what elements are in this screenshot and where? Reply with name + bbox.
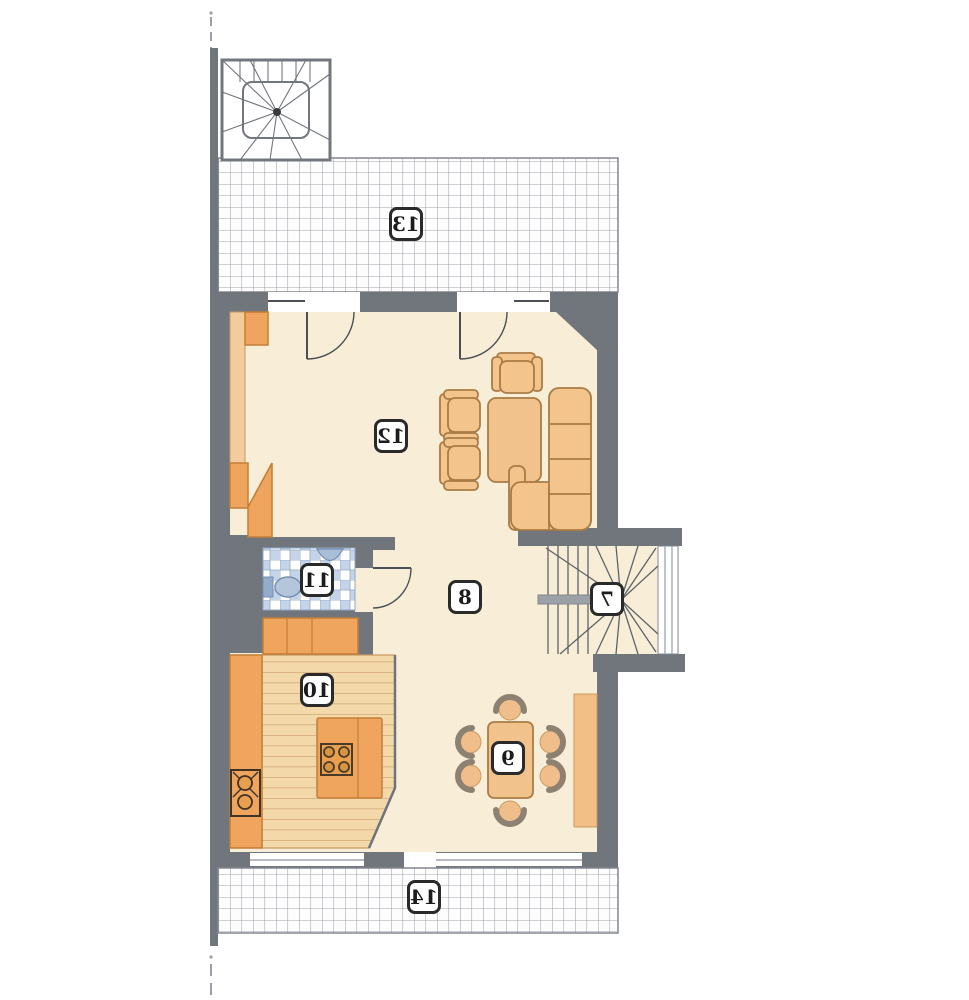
floor-plan-drawing	[0, 0, 969, 1000]
room-number: 14	[410, 887, 438, 907]
room-label-terrace-top: 13	[389, 207, 423, 241]
armchair-top	[492, 353, 542, 393]
room-number: 9	[501, 748, 515, 768]
stair-bay-window	[658, 546, 678, 654]
room-label-terrace-bottom: 14	[407, 880, 441, 914]
wardrobe-box	[245, 312, 268, 345]
room-label-kitchen: 10	[300, 673, 334, 707]
room-number: 12	[377, 426, 405, 446]
room-number: 8	[458, 587, 472, 607]
room-label-staircase: 7	[590, 582, 624, 616]
wardrobe-strip	[230, 312, 245, 463]
spiral-staircase	[222, 60, 330, 160]
toilet-fixture	[263, 577, 301, 597]
room-number: 7	[600, 589, 614, 609]
kitchen-counter-left	[230, 655, 262, 848]
left-boundary-wall	[210, 48, 218, 294]
kitchen-counter-top	[263, 618, 358, 654]
room-label-hall: 8	[448, 580, 482, 614]
room-label-bathroom: 11	[300, 563, 334, 597]
armchair-left-1	[440, 390, 480, 442]
bottom-windows	[250, 852, 582, 868]
room-number: 11	[303, 570, 331, 590]
room-number: 10	[303, 680, 331, 700]
kitchen-island	[317, 718, 382, 798]
room-number: 13	[392, 214, 420, 234]
floor-plan-page: 7 8 9 10 11 12 13 14	[0, 0, 969, 1000]
room-label-dining: 9	[491, 741, 525, 775]
chimney-block	[230, 463, 248, 508]
room-label-living: 12	[374, 419, 408, 453]
dining-bench	[574, 694, 597, 827]
armchair-left-2	[440, 438, 480, 490]
kitchen-sink-unit	[231, 770, 260, 816]
